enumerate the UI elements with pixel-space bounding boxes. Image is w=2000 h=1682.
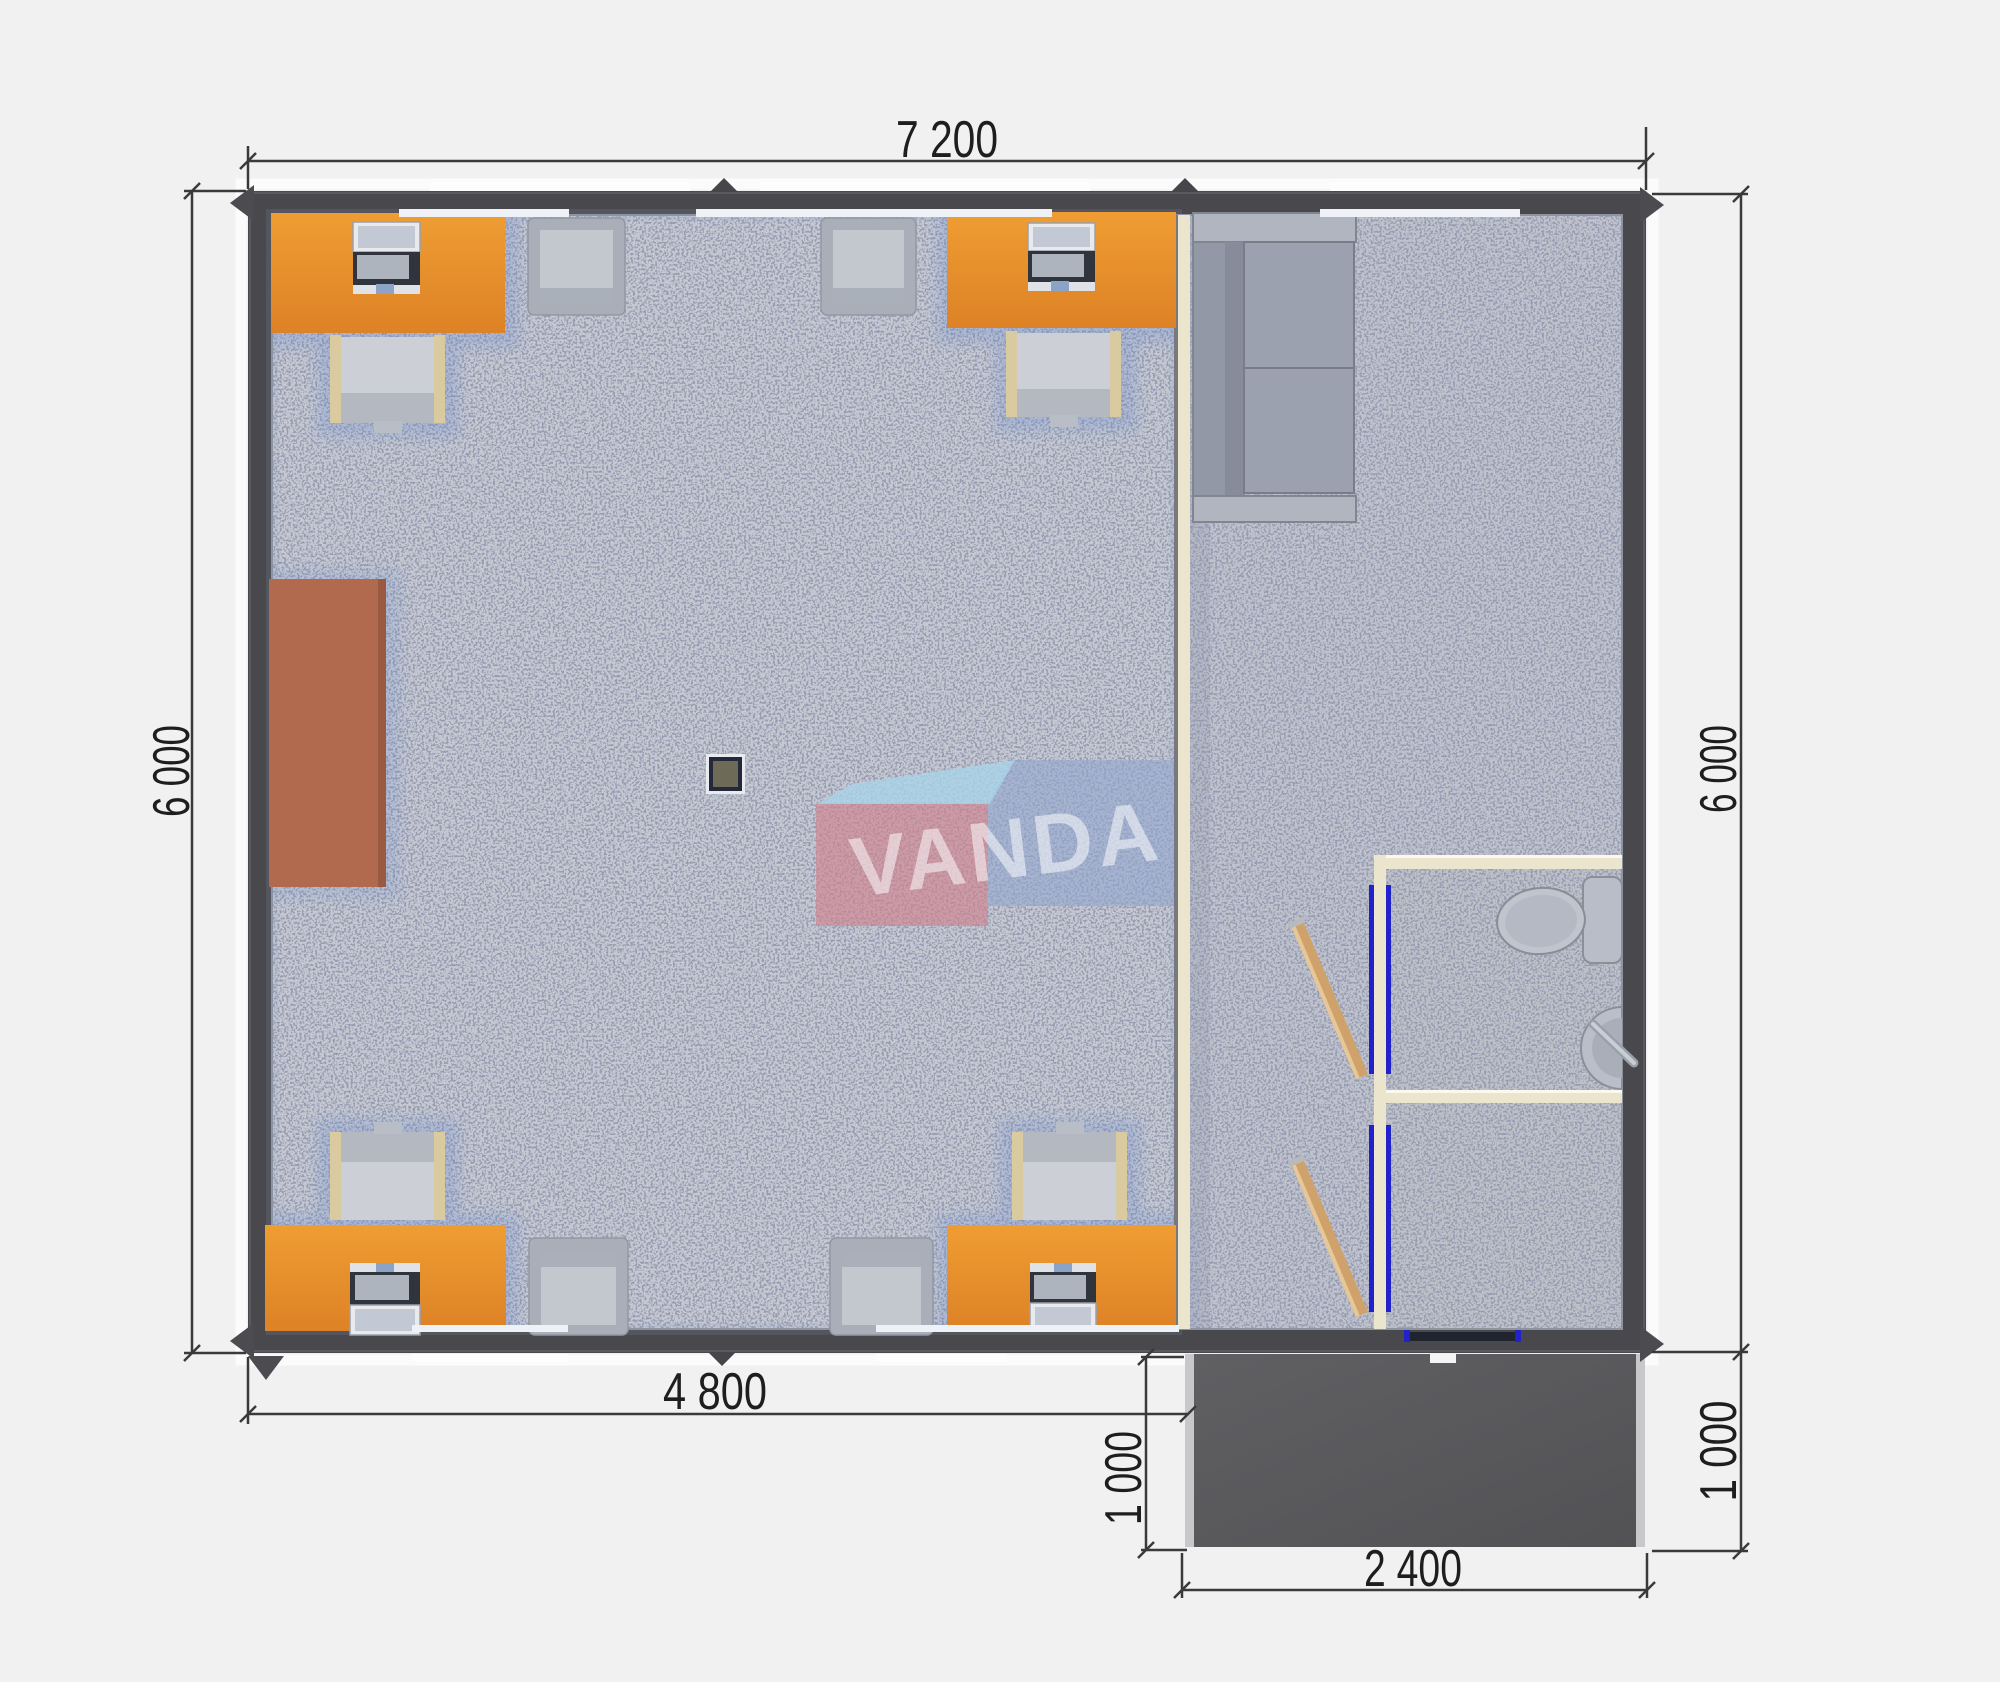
svg-text:4 800: 4 800: [663, 1363, 767, 1421]
svg-text:6 000: 6 000: [143, 725, 201, 817]
svg-text:1 000: 1 000: [1095, 1431, 1153, 1525]
svg-text:6 000: 6 000: [1690, 725, 1748, 813]
svg-text:1 000: 1 000: [1690, 1401, 1748, 1502]
svg-text:2 400: 2 400: [1364, 1540, 1462, 1598]
svg-text:7 200: 7 200: [896, 111, 998, 169]
